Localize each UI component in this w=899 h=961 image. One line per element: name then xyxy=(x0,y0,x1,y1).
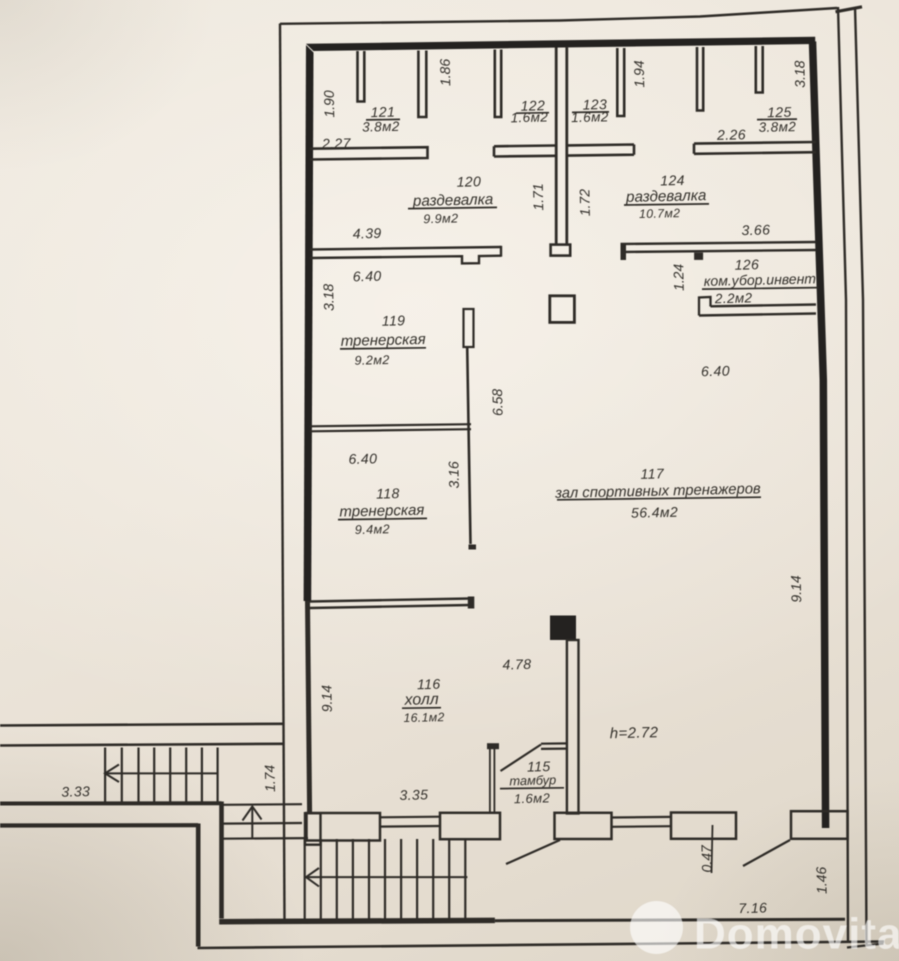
svg-text:тренерская: тренерская xyxy=(341,331,426,350)
svg-text:119: 119 xyxy=(382,312,406,329)
svg-text:117: 117 xyxy=(640,465,665,482)
svg-text:6.58: 6.58 xyxy=(489,388,506,416)
svg-text:6.40: 6.40 xyxy=(701,363,730,380)
svg-text:120: 120 xyxy=(456,173,481,190)
svg-text:1.90: 1.90 xyxy=(321,90,338,118)
svg-text:3.8м2: 3.8м2 xyxy=(758,119,796,135)
svg-text:2.26: 2.26 xyxy=(716,126,746,143)
svg-text:9.2м2: 9.2м2 xyxy=(354,353,389,368)
svg-text:6.40: 6.40 xyxy=(353,268,382,285)
svg-text:121: 121 xyxy=(370,104,395,121)
svg-text:1.72: 1.72 xyxy=(576,189,593,217)
svg-text:h=2.72: h=2.72 xyxy=(610,724,659,742)
svg-text:3.35: 3.35 xyxy=(399,786,428,803)
svg-text:118: 118 xyxy=(376,485,400,502)
svg-text:16.1м2: 16.1м2 xyxy=(403,710,445,725)
svg-text:раздевалка: раздевалка xyxy=(625,187,707,206)
svg-text:9.4м2: 9.4м2 xyxy=(355,522,390,537)
svg-text:3.66: 3.66 xyxy=(741,221,770,238)
svg-text:3.8м2: 3.8м2 xyxy=(362,119,400,135)
svg-text:1.6м2: 1.6м2 xyxy=(514,790,551,806)
svg-text:1.94: 1.94 xyxy=(631,60,648,88)
svg-text:3.18: 3.18 xyxy=(320,283,337,311)
svg-text:холл: холл xyxy=(404,691,439,709)
svg-text:тамбур: тамбур xyxy=(509,772,556,788)
svg-text:2.27: 2.27 xyxy=(321,135,352,152)
svg-text:1.6м2: 1.6м2 xyxy=(571,109,609,125)
svg-text:3.18: 3.18 xyxy=(791,60,808,88)
svg-text:116: 116 xyxy=(417,676,441,693)
svg-text:0.47: 0.47 xyxy=(698,844,715,873)
svg-text:9.14: 9.14 xyxy=(788,575,805,603)
svg-text:1.71: 1.71 xyxy=(530,183,547,211)
svg-text:1.24: 1.24 xyxy=(670,263,687,291)
svg-text:9.9м2: 9.9м2 xyxy=(423,211,458,226)
svg-text:1.86: 1.86 xyxy=(437,58,454,86)
svg-text:9.14: 9.14 xyxy=(318,685,335,713)
svg-text:3.16: 3.16 xyxy=(445,461,462,489)
svg-text:56.4м2: 56.4м2 xyxy=(631,504,678,521)
svg-text:Domovita: Domovita xyxy=(694,910,899,959)
svg-text:3.33: 3.33 xyxy=(61,783,90,800)
svg-text:ком.убор.инвент: ком.убор.инвент xyxy=(704,270,817,289)
svg-text:124: 124 xyxy=(660,172,685,189)
svg-text:1.74: 1.74 xyxy=(261,764,278,792)
svg-text:6.40: 6.40 xyxy=(348,450,377,467)
svg-text:тренерская: тренерская xyxy=(339,502,424,521)
svg-text:1.46: 1.46 xyxy=(813,866,830,894)
svg-text:10.7м2: 10.7м2 xyxy=(639,206,681,221)
svg-text:4.78: 4.78 xyxy=(502,656,531,673)
svg-text:126: 126 xyxy=(734,256,759,273)
svg-text:1.6м2: 1.6м2 xyxy=(510,109,548,125)
svg-text:4.39: 4.39 xyxy=(353,225,382,242)
svg-text:125: 125 xyxy=(767,104,792,121)
svg-text:2.2м2: 2.2м2 xyxy=(714,290,753,306)
